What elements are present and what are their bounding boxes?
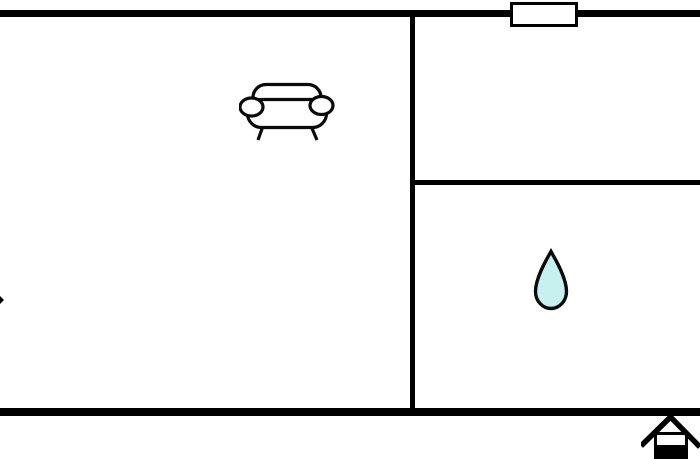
wall-top <box>0 10 700 17</box>
wall-vertical-divider <box>410 14 415 410</box>
wall-bottom <box>0 408 700 416</box>
wall-horizontal-divider <box>412 180 700 185</box>
floorplan-canvas <box>0 0 700 459</box>
home-icon <box>641 414 700 459</box>
left-edge-mark-icon <box>0 293 5 307</box>
water-drop-icon <box>531 248 571 313</box>
window-icon <box>510 2 578 27</box>
sofa-icon <box>239 82 335 142</box>
